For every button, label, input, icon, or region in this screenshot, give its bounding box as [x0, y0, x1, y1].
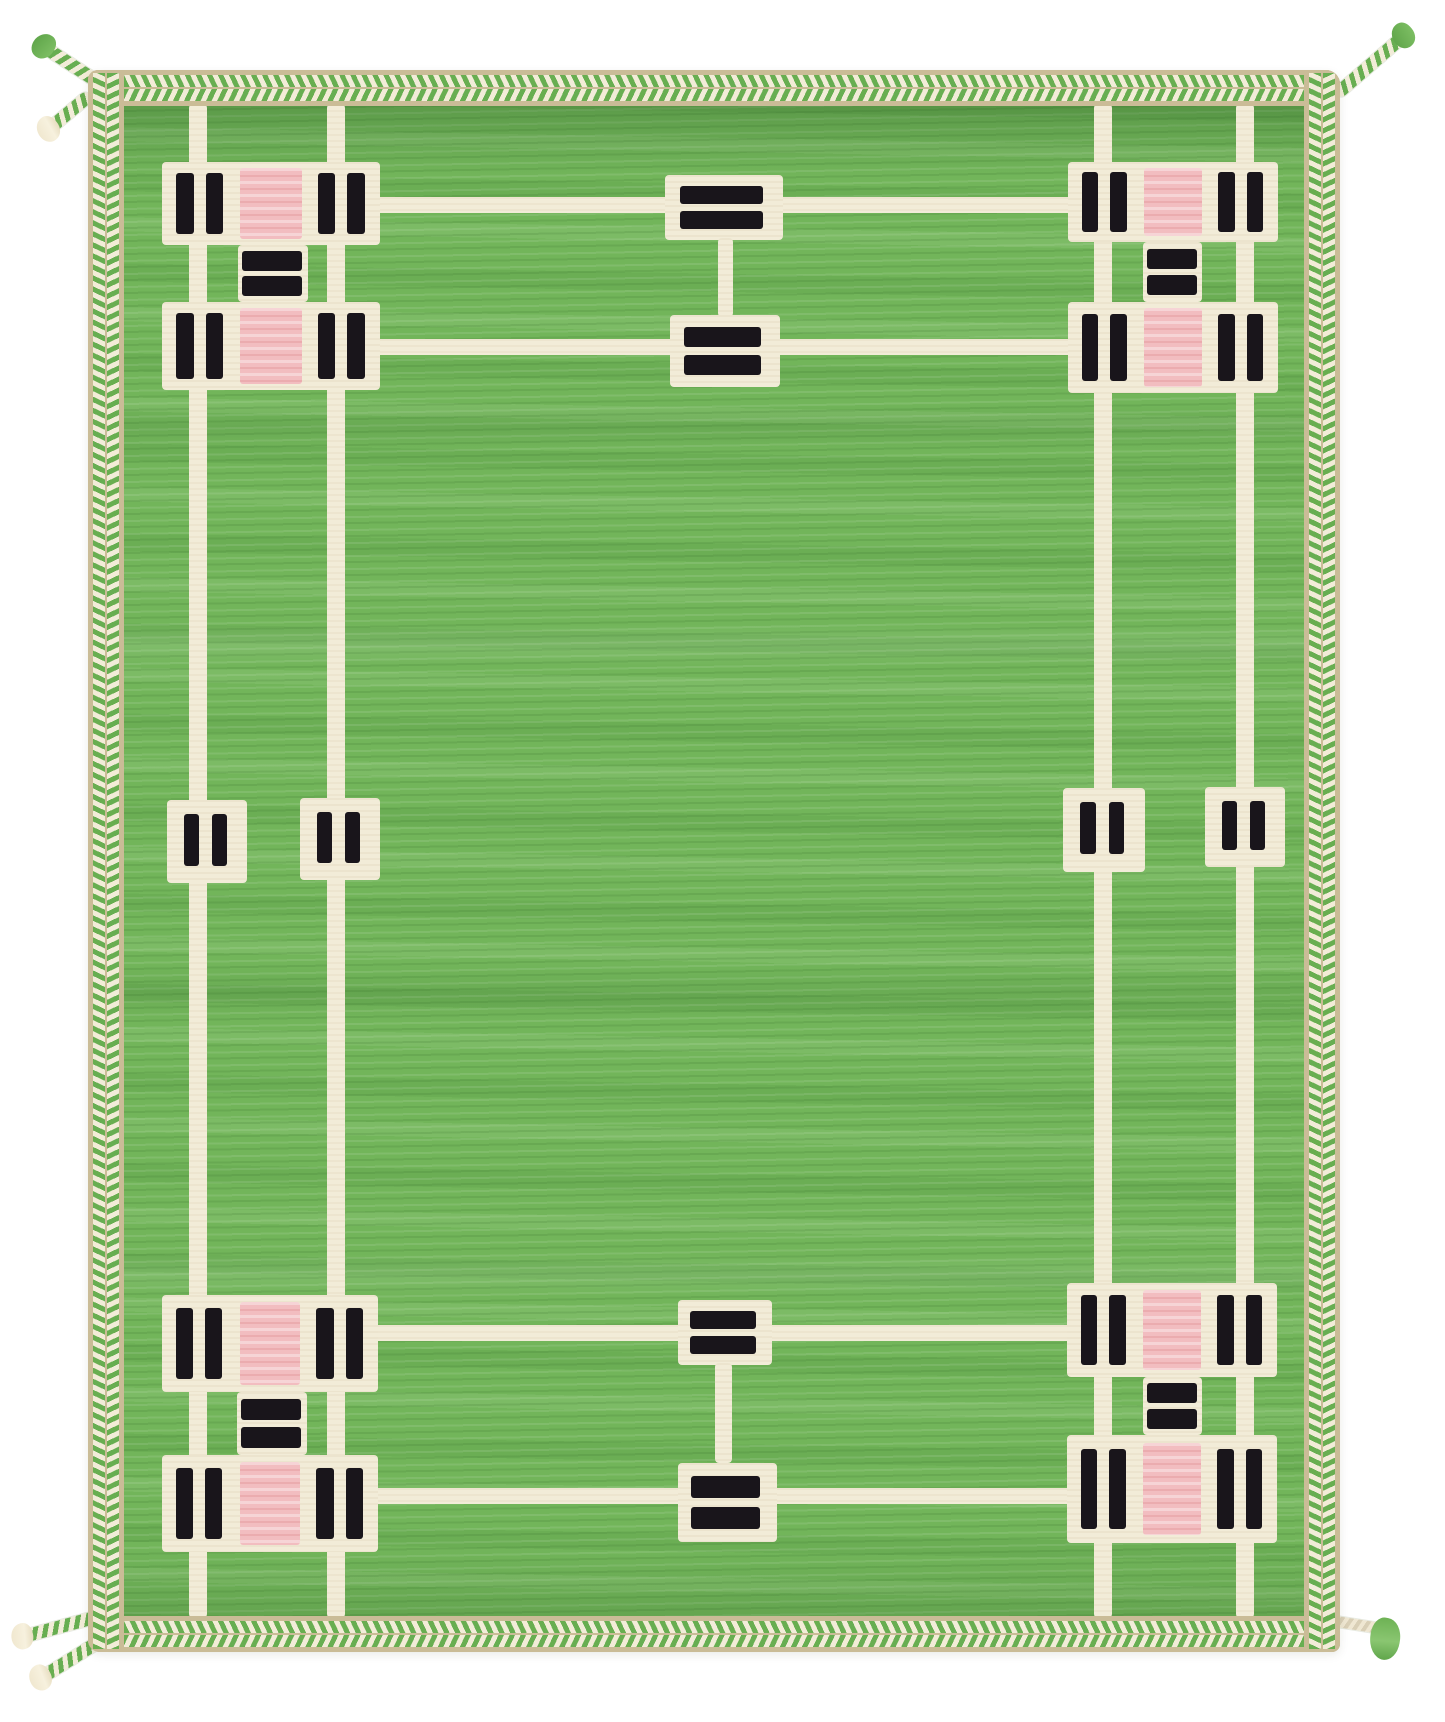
chevron-row: [93, 73, 105, 1649]
pink-square: [1144, 308, 1203, 386]
corner-motif-top-left-lower-rect: [162, 302, 380, 390]
field-texture-streak: [122, 624, 1306, 666]
black-bar: [1082, 314, 1099, 381]
black-bar: [205, 1468, 222, 1540]
black-bar: [1109, 802, 1125, 854]
black-bar: [1246, 1449, 1263, 1529]
black-bar: [345, 812, 360, 863]
field-texture-streak: [122, 1548, 1306, 1618]
black-bar: [347, 313, 364, 378]
black-bar: [316, 1468, 333, 1540]
center-motif-top-lower-rect: [670, 315, 780, 387]
tassel-tuft: [27, 29, 60, 63]
pink-square: [240, 308, 301, 384]
black-bar: [316, 1308, 333, 1380]
braid-border-top: [88, 70, 1340, 106]
pink-square: [240, 1302, 300, 1385]
black-bar: [1147, 275, 1197, 295]
black-bar: [317, 812, 332, 863]
center-motif-bottom-lower-rect: [678, 1463, 777, 1542]
black-bar: [1110, 314, 1127, 381]
black-bar: [1147, 249, 1197, 269]
black-bar: [241, 1399, 301, 1420]
black-bar: [691, 1476, 760, 1497]
chevron-row: [1323, 73, 1335, 1649]
black-bar: [347, 173, 364, 234]
center-motif-bottom-connector: [715, 1363, 732, 1463]
black-bar: [318, 173, 335, 234]
black-bar: [680, 186, 763, 204]
corner-motif-top-right-lower-rect: [1068, 302, 1278, 393]
black-bar: [176, 313, 193, 378]
corner-motif-bottom-left-upper-rect: [162, 1295, 378, 1392]
tassel-tuft: [24, 1661, 56, 1695]
tassel-tuft: [1367, 1616, 1403, 1662]
black-bar: [1080, 802, 1096, 854]
corner-motif-top-left-middle-block: [238, 245, 308, 302]
black-bar: [206, 313, 223, 378]
tassel-tuft: [1386, 19, 1420, 53]
black-bar: [1110, 172, 1127, 231]
chevron-row: [1309, 73, 1321, 1649]
black-bar: [1147, 1383, 1197, 1403]
corner-motif-top-right-middle-block: [1143, 242, 1202, 302]
braid-border-right: [1304, 70, 1340, 1652]
rug: [88, 70, 1340, 1652]
black-bar: [1109, 1295, 1126, 1365]
black-bar: [176, 173, 193, 234]
center-motif-bottom-upper-rect: [678, 1300, 772, 1365]
chevron-row: [91, 75, 1337, 87]
pink-square: [1143, 1443, 1202, 1536]
black-bar: [1081, 1295, 1098, 1365]
black-bar: [684, 355, 761, 374]
corner-motif-bottom-left-lower-rect: [162, 1455, 378, 1552]
tassel-top-left-lower: [46, 90, 94, 133]
corner-motif-bottom-right-lower-rect: [1067, 1435, 1277, 1543]
chevron-row: [91, 1635, 1337, 1647]
black-bar: [184, 814, 199, 865]
black-bar: [1247, 314, 1264, 381]
center-motif-top-upper-rect: [665, 175, 783, 240]
tassel-top-right: [1332, 34, 1405, 100]
black-bar: [1217, 1295, 1234, 1365]
black-bar: [690, 1336, 756, 1354]
center-motif-top-connector: [718, 238, 733, 317]
chevron-row: [91, 1621, 1337, 1633]
black-bar: [690, 1311, 756, 1329]
side-square-right-inner: [1063, 788, 1145, 872]
tassel-tuft: [8, 1621, 36, 1652]
black-bar: [318, 313, 335, 378]
black-bar: [1222, 801, 1237, 851]
black-bar: [212, 814, 227, 865]
black-bar: [1082, 172, 1099, 231]
black-bar: [1081, 1449, 1098, 1529]
black-bar: [1217, 1449, 1234, 1529]
braid-border-left: [88, 70, 124, 1652]
black-bar: [691, 1507, 760, 1528]
black-bar: [1147, 1409, 1197, 1429]
pink-square: [1144, 168, 1203, 237]
black-bar: [242, 276, 302, 295]
black-bar: [346, 1308, 363, 1380]
black-bar: [206, 173, 223, 234]
chevron-row: [91, 89, 1337, 101]
corner-motif-bottom-right-upper-rect: [1067, 1283, 1277, 1377]
pink-square: [1143, 1290, 1202, 1371]
black-bar: [680, 211, 763, 229]
corner-motif-top-left-upper-rect: [162, 162, 380, 245]
corner-motif-bottom-left-middle-block: [237, 1392, 307, 1455]
corner-motif-bottom-right-middle-block: [1143, 1377, 1202, 1435]
chevron-row: [107, 73, 119, 1649]
black-bar: [176, 1308, 193, 1380]
black-bar: [176, 1468, 193, 1540]
pink-square: [240, 1462, 300, 1545]
black-bar: [1218, 314, 1235, 381]
black-bar: [1246, 1295, 1263, 1365]
black-bar: [205, 1308, 222, 1380]
photo-canvas: [0, 0, 1445, 1722]
braid-border-bottom: [88, 1616, 1340, 1652]
tassel-tuft: [31, 112, 65, 146]
black-bar: [242, 251, 302, 270]
pink-square: [240, 168, 301, 239]
black-bar: [684, 327, 761, 346]
field-texture-streak: [122, 404, 1306, 450]
black-bar: [346, 1468, 363, 1540]
corner-motif-top-right-upper-rect: [1068, 162, 1278, 242]
black-bar: [1250, 801, 1265, 851]
black-bar: [241, 1427, 301, 1448]
black-bar: [1218, 172, 1235, 231]
side-square-left-outer: [167, 800, 247, 883]
black-bar: [1247, 172, 1264, 231]
black-bar: [1109, 1449, 1126, 1529]
field-texture-streak: [122, 964, 1306, 1020]
side-square-right-outer: [1205, 787, 1285, 867]
side-square-left-inner: [300, 798, 380, 880]
